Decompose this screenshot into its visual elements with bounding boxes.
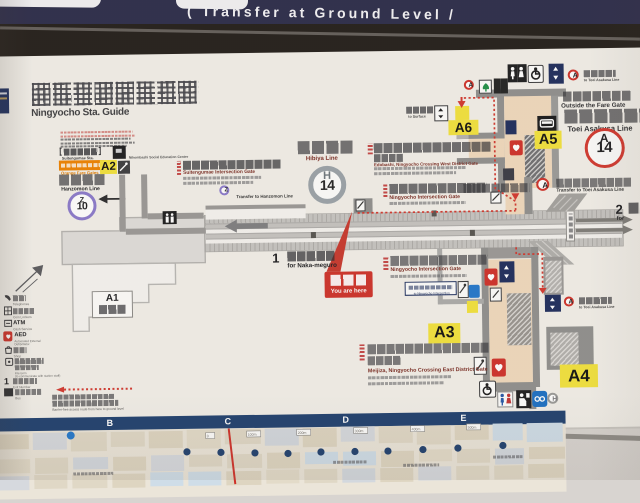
- svg-text:200m: 200m: [298, 430, 307, 434]
- svg-text:300m: 300m: [355, 429, 364, 433]
- svg-text:0: 0: [207, 434, 209, 438]
- svg-text:100m: 100m: [248, 432, 257, 436]
- svg-text:500m: 500m: [468, 425, 477, 429]
- svg-text:400m: 400m: [412, 427, 421, 431]
